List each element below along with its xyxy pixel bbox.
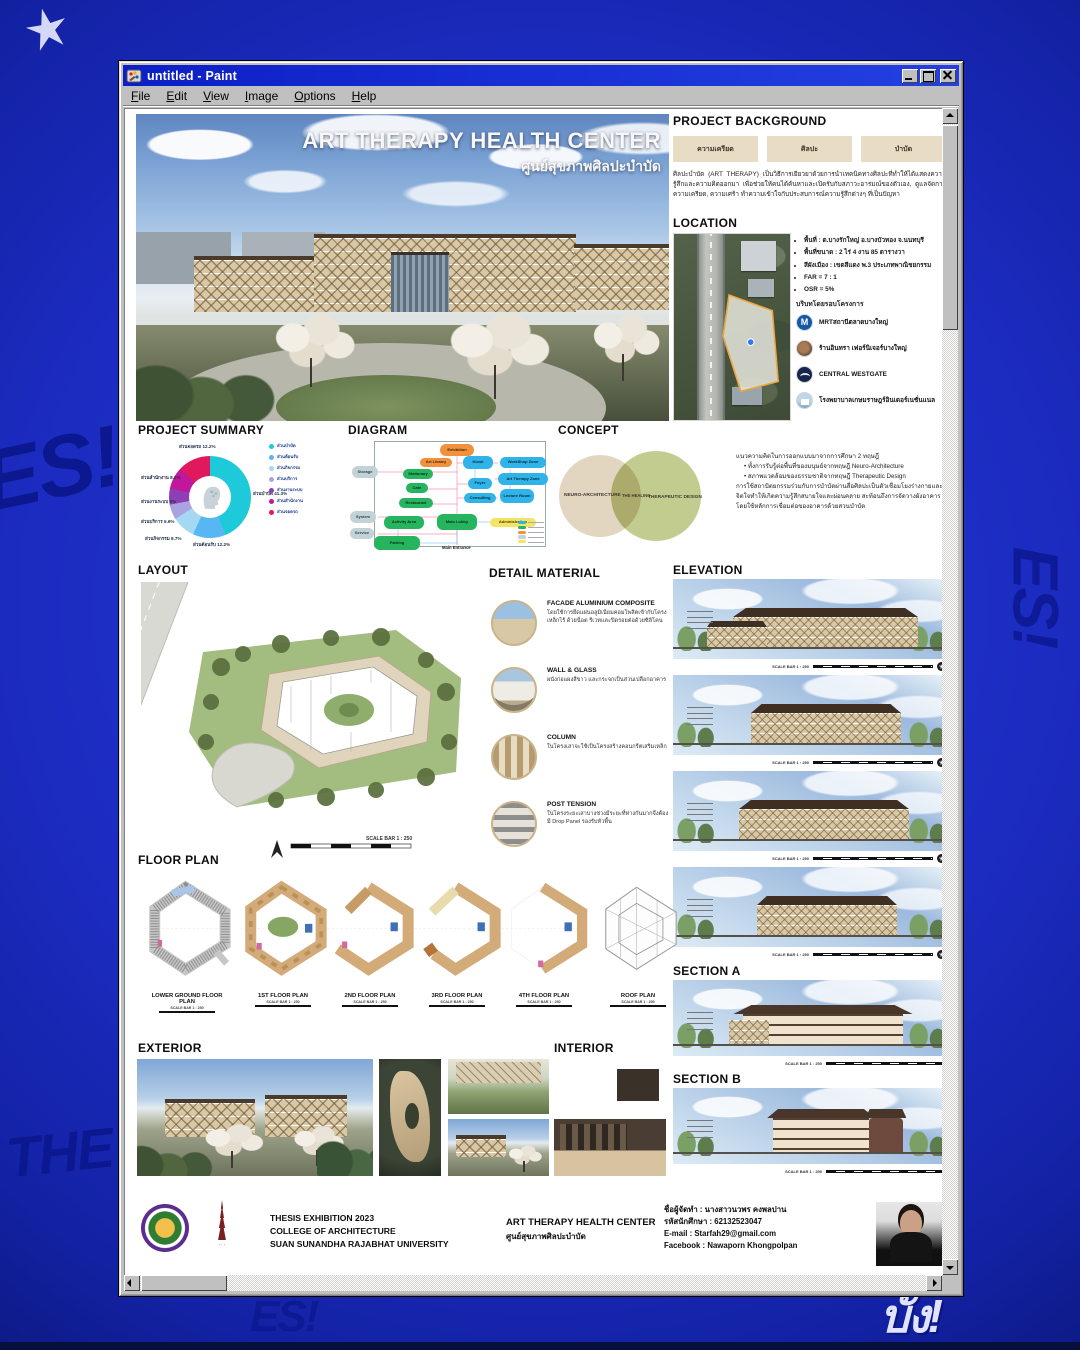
diagram-node: Exhibition (440, 444, 474, 456)
elevation-render-1 (673, 579, 942, 659)
context-item-mall: CENTRAL WESTGATE (796, 362, 942, 386)
detail-material-heading: DETAIL MATERIAL (489, 566, 600, 580)
menu-options[interactable]: Options (294, 89, 335, 103)
scroll-left-button[interactable] (124, 1275, 140, 1291)
bubble-diagram: Storage System Service Exhibition Art Li… (350, 439, 556, 557)
scroll-up-button[interactable] (942, 108, 958, 124)
scroll-right-button[interactable] (926, 1275, 942, 1291)
material-item-post-tension: POST TENSIONในโครงระยะเสาบางช่วงมีระยะที… (491, 801, 669, 861)
diagram-node: Art Library (420, 458, 452, 467)
exterior-render-aerial (379, 1059, 441, 1176)
scrollbar-corner (942, 1275, 958, 1291)
venn-label-healing: THE HEALING (622, 493, 650, 498)
horizontal-scroll-thumb[interactable] (141, 1275, 227, 1291)
site-plan: ถนนกาญจนาภิเษก (141, 582, 481, 858)
window-title: untitled - Paint (147, 69, 900, 83)
plan-3rd-floor: 3RD FLOOR PLAN SCALE BAR 1 : 250 (413, 870, 501, 1007)
program-donut-chart: ส่วนบำบัด 41.3% ส่วนต้อนรับ 12.2% ส่วนกิ… (141, 439, 341, 557)
background-graffiti: ES! (0, 407, 128, 532)
section-b-render (673, 1088, 942, 1164)
foreground-bushes (136, 335, 276, 421)
location-fact: พื้นที่ขนาด : 2 ไร่ 4 งาน 85 ตารางวา (804, 248, 942, 257)
floor-plan-heading: FLOOR PLAN (138, 853, 219, 867)
elevation-render-4 (673, 867, 942, 947)
context-label: CENTRAL WESTGATE (819, 371, 887, 378)
location-fact: พื้นที่ : ต.บางรักใหญ่ อ.บางบัวทอง จ.นนท… (804, 236, 942, 245)
layout-heading: LAYOUT (138, 563, 188, 577)
author-info: ชื่อผู้จัดทำ : นางสาวนวพร คงพลปาน รหัสนั… (664, 1204, 797, 1252)
concept-text: แนวความคิดในการออกแบบมาจากการศึกษา 2 ทฤษ… (736, 452, 942, 512)
context-label: ร้านอินทรา เฟอร์นิเจอร์บางใหญ่ (819, 343, 907, 353)
poster-title: ART THERAPY HEALTH CENTER (302, 128, 661, 154)
exhibition-info: THESIS EXHIBITION 2023 COLLEGE OF ARCHIT… (270, 1212, 449, 1251)
plan-roof: ROOF PLAN SCALE BAR 1 : 250 (594, 870, 682, 1007)
donut-label: ส่วนจอดรถ 12.2% (179, 444, 216, 451)
donut-legend: ส่วนบำบัด ส่วนต้อนรับ ส่วนกิจกรรม ส่วนบร… (269, 443, 341, 521)
material-item-column: COLUMNในโครงเสาจะใช้เป็นโครงสร้างคอนกรีต… (491, 734, 669, 794)
project-summary-heading: PROJECT SUMMARY (138, 423, 264, 437)
elevation-render-2 (673, 675, 942, 755)
vertical-scrollbar[interactable] (942, 108, 958, 1275)
donut-chart (169, 456, 251, 538)
context-item-mrt: M MRTสถานีตลาดบางใหญ่ (796, 310, 942, 334)
close-button[interactable] (940, 69, 956, 83)
diagram-node: Storage (352, 466, 378, 478)
column-photo (491, 734, 537, 780)
exterior-render-courtyard (448, 1059, 549, 1114)
wall-glass-photo (491, 667, 537, 713)
elevation-scalebar: SCALE BAR 1 : 250 (673, 757, 942, 768)
blossom-tree (584, 311, 664, 381)
thesis-poster: ART THERAPY HEALTH CENTER ศูนย์สุขภาพศิล… (136, 114, 942, 1274)
concept-body: การใช้สถาปัตยกรรมร่วมกับการบำบัดผ่านสื่อ… (736, 482, 942, 512)
donut-label: ส่วนงานระบบ 6% (141, 499, 176, 506)
location-fact: FAR = 7 : 1 (804, 273, 942, 282)
menu-help[interactable]: Help (352, 89, 377, 103)
plan-2nd-floor: 2ND FLOOR PLAN SCALE BAR 1 : 250 (326, 870, 414, 1007)
menu-edit[interactable]: Edit (166, 89, 187, 103)
exterior-render-main (137, 1059, 373, 1176)
menu-view[interactable]: View (203, 89, 229, 103)
project-background-heading: PROJECT BACKGROUND (673, 114, 826, 128)
elevation-render-3 (673, 771, 942, 851)
graffiti-star (22, 4, 73, 55)
poster-subtitle: ศูนย์สุขภาพศิลปะบำบัด (302, 156, 661, 178)
context-heading: บริบทโดยรอบโครงการ (796, 298, 864, 309)
diagram-node: Cafe (406, 483, 428, 493)
blossom-tree (436, 309, 556, 399)
diagram-node: Foyer (468, 478, 492, 489)
hero-building-atrium (391, 252, 449, 312)
donut-label: ส่วนกิจกรรม 8.7% (145, 536, 182, 543)
section-scalebar: SCALE BAR 1 : 250 (673, 1166, 942, 1177)
menu-image[interactable]: Image (245, 89, 278, 103)
paint-window: untitled - Paint File Edit View Image Op… (118, 60, 964, 1297)
location-fact: OSR = 5% (804, 285, 942, 294)
background-graffiti: ES! (250, 1292, 317, 1342)
section-scalebar: SCALE BAR 1 : 250 (673, 1058, 942, 1069)
paint-canvas[interactable]: ART THERAPY HEALTH CENTER ศูนย์สุขภาพศิล… (124, 108, 942, 1275)
exterior-render-entry (448, 1119, 549, 1176)
interior-render-lounge (554, 1059, 666, 1114)
section-a-heading: SECTION A (673, 964, 741, 978)
section-a-render (673, 980, 942, 1056)
diagram-node: Lecture Room (500, 489, 534, 503)
elevation-heading: ELEVATION (673, 563, 743, 577)
hospital-icon (796, 392, 813, 409)
horizontal-scrollbar[interactable] (124, 1275, 942, 1291)
donut-center (189, 476, 231, 518)
keyword-buttons: ความเครียด ศิลปะ บำบัด (673, 136, 942, 162)
diagram-node: System (350, 511, 376, 523)
svg-text:SCALE BAR 1 : 250: SCALE BAR 1 : 250 (366, 836, 412, 842)
head-silhouette-icon (193, 480, 227, 514)
background-graffiti: ES! (998, 547, 1072, 648)
hero-building-right-wing (574, 244, 669, 310)
elevation-scalebar: SCALE BAR 1 : 250 (673, 853, 942, 864)
post-tension-photo (491, 801, 537, 847)
paint-app-icon (126, 68, 142, 84)
elevation-scalebar: SCALE BAR 1 : 250 (673, 949, 942, 960)
diagram-node: Restaurant (399, 498, 433, 508)
diagram-node: Main Lobby (437, 514, 477, 530)
diagram-node: Parking (374, 536, 420, 550)
context-label: โรงพยาบาลเกษมราษฎร์อินเตอร์เนชั่นแนล (819, 395, 935, 405)
furniture-store-icon (796, 340, 813, 357)
section-b-heading: SECTION B (673, 1072, 741, 1086)
location-heading: LOCATION (673, 216, 737, 230)
desktop-edge-bar (0, 1342, 1080, 1350)
maximize-button[interactable] (920, 69, 936, 83)
exterior-heading: EXTERIOR (138, 1041, 202, 1055)
diagram-node: Consulting (464, 493, 496, 503)
plan-1st-floor: 1ST FLOOR PLAN SCALE BAR 1 : 250 (239, 870, 327, 1007)
venn-label-neuro: NEURO-ARCHITECTURE (564, 493, 621, 498)
facade-photo (491, 600, 537, 646)
vertical-scroll-thumb[interactable] (942, 125, 958, 330)
diagram-legend (518, 521, 544, 545)
context-item-store: ร้านอินทรา เฟอร์นิเจอร์บางใหญ่ (796, 336, 942, 360)
context-item-hospital: โรงพยาบาลเกษมราษฎร์อินเตอร์เนชั่นแนล (796, 388, 942, 412)
keyword-therapy: บำบัด (861, 136, 942, 162)
college-logo: · · · (200, 1200, 244, 1258)
interior-render-gallery (554, 1119, 666, 1176)
keyword-stress: ความเครียด (673, 136, 758, 162)
university-emblem (141, 1204, 189, 1252)
diagram-heading: DIAGRAM (348, 423, 407, 437)
main-entrance-label: Main Entrance (442, 545, 471, 550)
concept-bullet: • สภาพแวดล้อมของธรรมชาติจากทฤษฎี Therape… (736, 472, 942, 482)
poster-title-block: ART THERAPY HEALTH CENTER ศูนย์สุขภาพศิล… (302, 128, 661, 178)
footer-project-name: ART THERAPY HEALTH CENTER ศูนย์สุขภาพศิล… (506, 1217, 656, 1243)
concept-bullet: • ทั้งการรับรู้ต่อพื้นที่ของมนุษย์จากทฤษ… (736, 462, 942, 472)
material-item-facade: FACADE ALUMINIUM COMPOSITEโดยใช้การยึดแผ… (491, 600, 669, 660)
minimize-button[interactable] (902, 69, 918, 83)
venn-label-therapeutic: THERAPEUTIC DESIGN (648, 495, 702, 500)
donut-label: ส่วนต้อนรับ 12.2% (193, 542, 230, 549)
concept-intro: แนวความคิดในการออกแบบมาจากการศึกษา 2 ทฤษ… (736, 452, 942, 462)
location-fact: สีผังเมือง : เขตสีแดง พ.3 ประเภทพาณิชยกร… (804, 261, 942, 270)
donut-label: ส่วนสำนักงาน 8.2% (141, 475, 181, 482)
hero-building-left-wing (194, 256, 319, 312)
donut-label: ส่วนบริการ 5.6% (141, 519, 175, 526)
site-boundary-overlay (674, 234, 790, 419)
mrt-icon: M (796, 314, 813, 331)
diagram-node: Activity Area (384, 516, 424, 529)
blossom-tree (264, 311, 360, 387)
title-bar[interactable]: untitled - Paint (123, 65, 959, 86)
plan-4th-floor: 4TH FLOOR PLAN SCALE BAR 1 : 250 (500, 870, 588, 1007)
mall-icon (796, 366, 813, 383)
interior-heading: INTERIOR (554, 1041, 614, 1055)
diagram-node: Service (350, 528, 374, 539)
location-facts-list: พื้นที่ : ต.บางรักใหญ่ อ.บางบัวทอง จ.นนท… (796, 236, 942, 297)
scroll-down-button[interactable] (942, 1259, 958, 1275)
diagram-node: WorkShop Zone (500, 457, 546, 468)
concept-heading: CONCEPT (558, 423, 619, 437)
material-item-wall-glass: WALL & GLASSผนังก่อแผงสีขาว และกระจกเป็น… (491, 667, 669, 727)
keyword-art: ศิลปะ (767, 136, 852, 162)
plan-lower-ground: LOWER GROUND FLOOR PLAN SCALE BAR 1 : 25… (143, 870, 231, 1013)
site-satellite-map (673, 233, 791, 421)
diagram-node: Kiosk (463, 456, 493, 469)
elevation-scalebar: SCALE BAR 1 : 250 (673, 661, 942, 672)
menu-bar: File Edit View Image Options Help (123, 87, 959, 106)
hero-render: ART THERAPY HEALTH CENTER ศูนย์สุขภาพศิล… (136, 114, 669, 421)
author-photo (876, 1202, 942, 1266)
diagram-node: Art Therapy Zone (498, 473, 548, 485)
background-graffiti: THE (3, 1115, 115, 1191)
project-background-text: ศิลปะบำบัด (ART THERAPY) เป็นวิธีการเยีย… (673, 170, 942, 200)
diagram-node: Stationary (403, 469, 433, 479)
menu-file[interactable]: File (131, 89, 150, 103)
context-label: MRTสถานีตลาดบางใหญ่ (819, 317, 888, 327)
